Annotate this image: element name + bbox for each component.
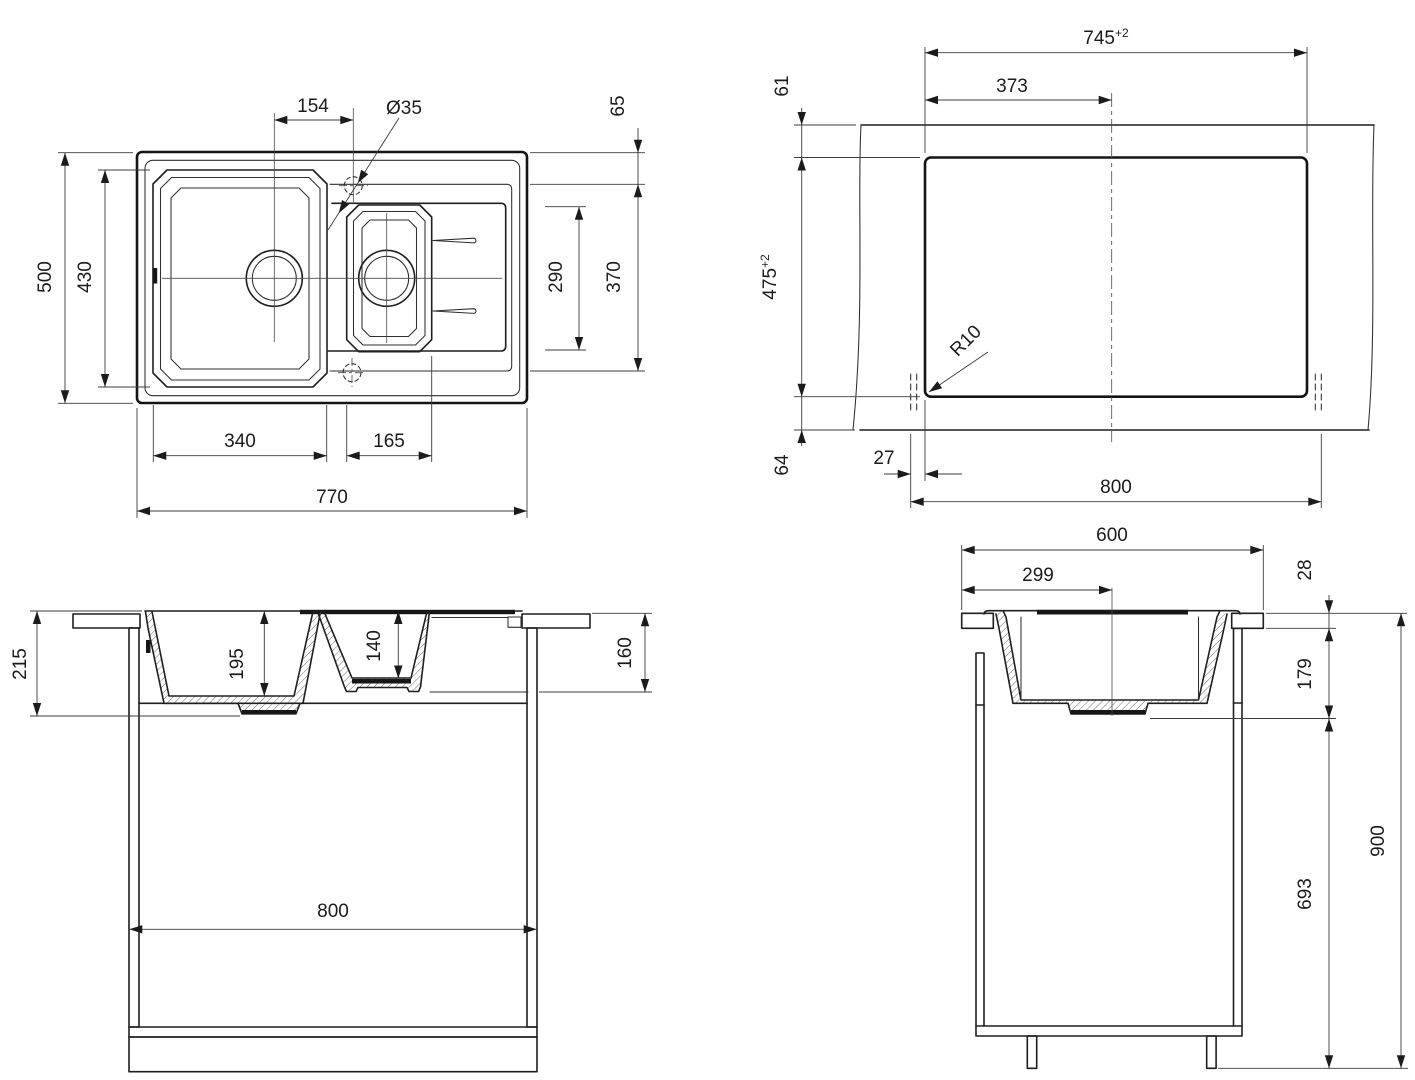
- side-dimensions: 600 299 28 179 693 900: [962, 525, 1408, 1068]
- dim-475-tol: +2: [758, 254, 772, 268]
- counter-slab-right: [522, 614, 590, 628]
- sink-dimension-drawing: 154 Ø35 65 370 290 500 430: [0, 0, 1415, 1080]
- dim-27: 27: [873, 448, 894, 469]
- dim-299: 299: [1022, 565, 1054, 586]
- dim-475: 475: [760, 268, 781, 300]
- dim-600: 600: [1096, 525, 1128, 546]
- svg-text:745+2: 745+2: [1083, 26, 1129, 49]
- plan-view: 154 Ø35 65 370 290 500 430: [35, 95, 645, 518]
- sink-section-side: [984, 588, 1240, 716]
- dim-154: 154: [297, 96, 329, 117]
- dim-faucet-dia: Ø35: [386, 98, 422, 119]
- sink-section-front: [139, 610, 528, 715]
- leg-front: [1207, 1036, 1216, 1068]
- dim-160: 160: [615, 637, 636, 669]
- dim-165: 165: [373, 431, 405, 452]
- counter-break-left: [853, 125, 861, 430]
- cutout-view: R10 745+2 373 61 475+2 64 27: [758, 26, 1374, 508]
- front-section-view: 215 195 140 160 800: [10, 610, 652, 1072]
- dim-745: 745: [1083, 28, 1115, 49]
- dim-500: 500: [35, 261, 56, 293]
- dim-64: 64: [772, 454, 793, 476]
- side-section-view: 600 299 28 179 693 900: [962, 525, 1408, 1068]
- dim-290: 290: [546, 261, 567, 293]
- dim-195: 195: [227, 648, 248, 680]
- dim-900: 900: [1368, 825, 1389, 857]
- dim-179: 179: [1295, 658, 1316, 690]
- counter-slab-back: [962, 613, 994, 628]
- overflow-mark: [153, 268, 157, 284]
- dim-215: 215: [10, 648, 31, 680]
- dim-800-front: 800: [317, 901, 349, 922]
- cutout-outline: [925, 158, 1307, 397]
- dim-430: 430: [75, 261, 96, 293]
- dim-693: 693: [1295, 878, 1316, 910]
- dim-770: 770: [316, 487, 348, 508]
- counter-slab-left: [73, 614, 140, 628]
- technical-drawing-page: 154 Ø35 65 370 290 500 430: [0, 0, 1415, 1080]
- drainer-grooves: [433, 238, 476, 313]
- dim-r10: R10: [946, 321, 985, 360]
- front-dimensions: 215 195 140 160 800: [10, 611, 652, 934]
- dim-28: 28: [1295, 559, 1316, 580]
- cabinet-front: [129, 628, 537, 1072]
- dim-340: 340: [224, 431, 256, 452]
- counter-break-right: [1368, 125, 1374, 430]
- dim-370: 370: [604, 261, 625, 293]
- dim-140: 140: [364, 630, 385, 662]
- dim-373: 373: [996, 76, 1028, 97]
- hidden-sink-edges: [911, 374, 1322, 414]
- dim-65: 65: [608, 95, 629, 116]
- counter-slab-front: [1232, 613, 1264, 628]
- dim-800-cutout: 800: [1100, 477, 1132, 498]
- svg-text:475+2: 475+2: [758, 254, 781, 300]
- sink-outline-plan: [137, 152, 527, 403]
- overflow-slot: [146, 640, 151, 653]
- cutout-dimensions: 745+2 373 61 475+2 64 27 800: [758, 26, 1321, 508]
- dim-61: 61: [772, 75, 793, 96]
- leg-back: [1027, 1036, 1036, 1068]
- plan-dimensions: 154 Ø35 65 370 290 500 430: [35, 95, 645, 518]
- plinth: [129, 1037, 537, 1072]
- dim-745-tol: +2: [1115, 26, 1129, 40]
